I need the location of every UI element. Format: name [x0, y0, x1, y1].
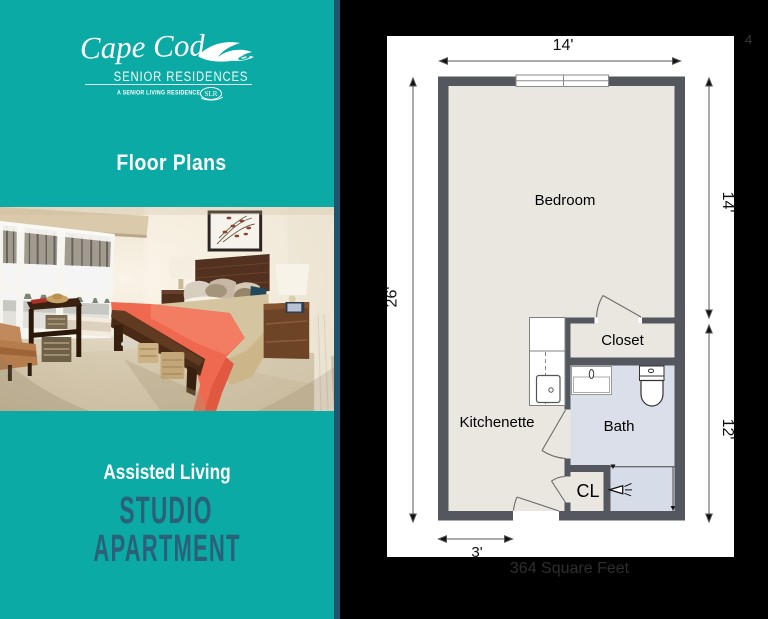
svg-text:SLR: SLR	[205, 90, 218, 98]
svg-text:14': 14'	[553, 37, 574, 54]
svg-text:Kitchenette: Kitchenette	[459, 414, 534, 431]
svg-text:Closet: Closet	[601, 332, 644, 349]
svg-text:Bath: Bath	[604, 418, 635, 435]
svg-text:26': 26'	[387, 287, 401, 308]
svg-text:3': 3'	[471, 544, 482, 557]
svg-text:12': 12'	[719, 419, 734, 440]
svg-text:CL: CL	[576, 481, 599, 501]
svg-text:Bedroom: Bedroom	[535, 192, 596, 209]
svg-text:14': 14'	[719, 192, 734, 213]
